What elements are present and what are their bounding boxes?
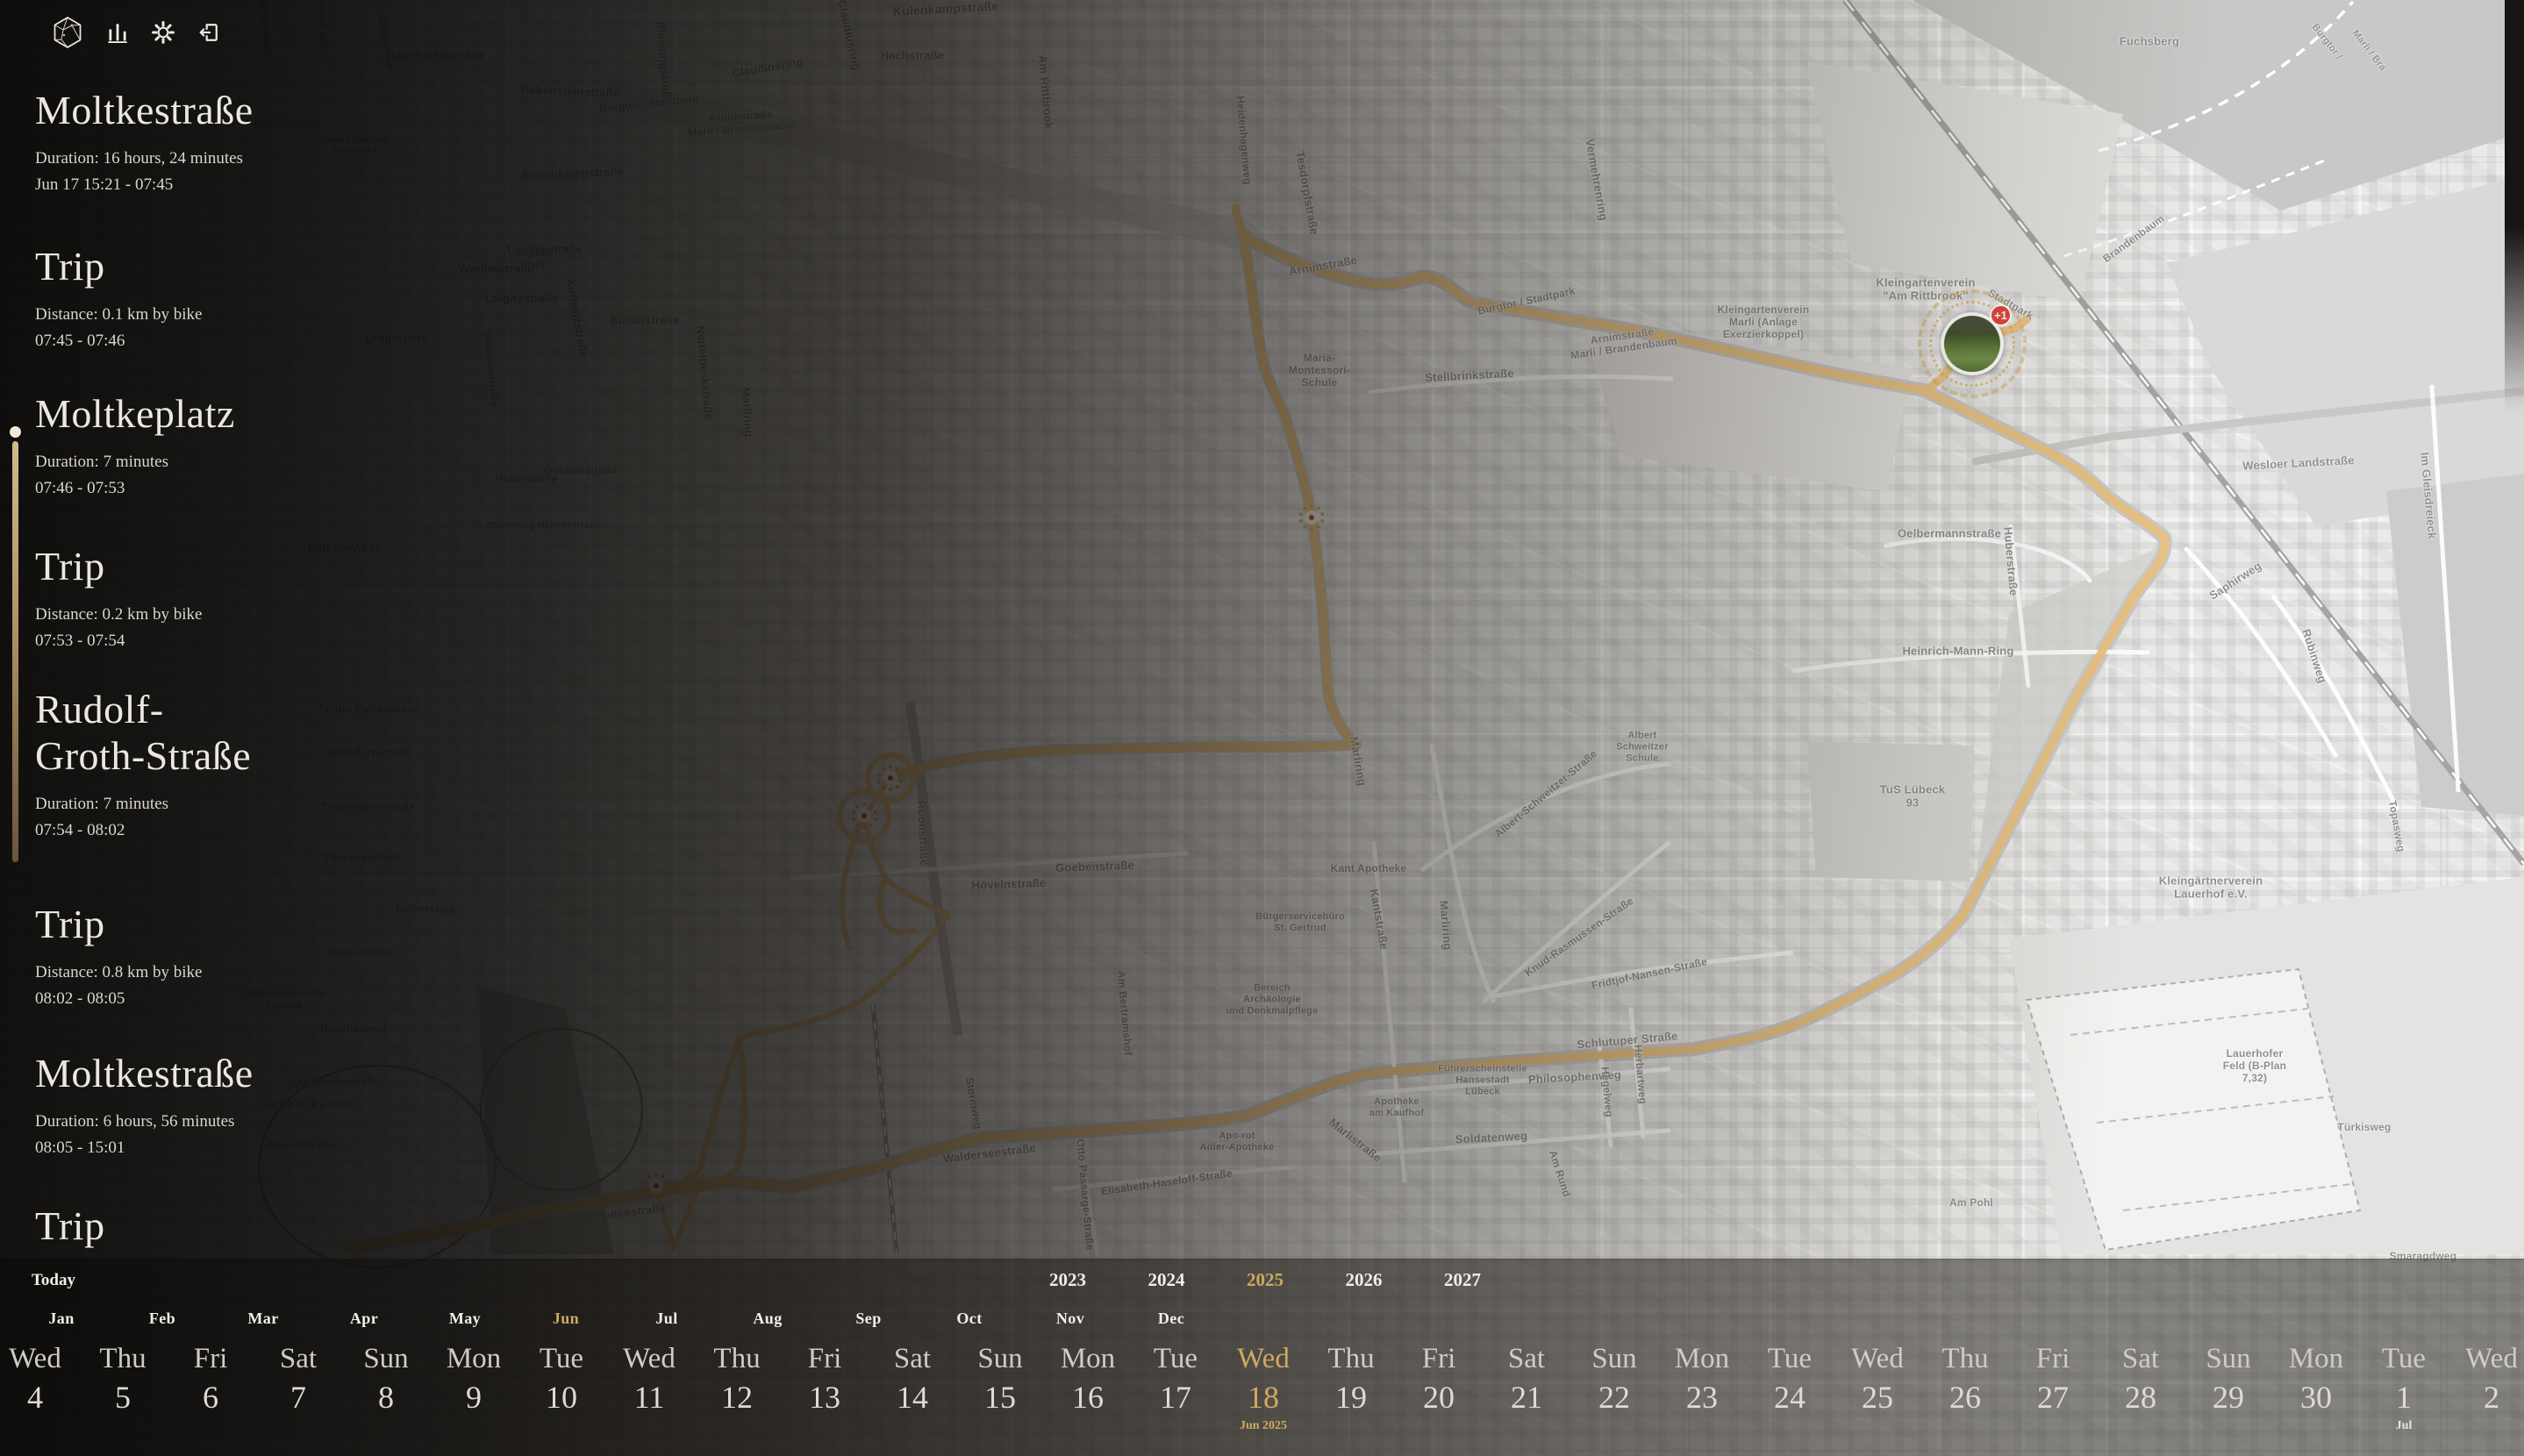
- map-label: Kleingartenverein Marli (Anlage Exerzier…: [1718, 303, 1810, 340]
- timeline-entry[interactable]: TripDistance: 0.2 km by bike07:53 - 07:5…: [35, 544, 379, 653]
- day-number: 1: [2360, 1377, 2448, 1418]
- timeline-entry-title: Rudolf- Groth-Straße: [35, 687, 379, 780]
- month-jul[interactable]: Jul: [617, 1310, 717, 1328]
- map-label: Rubinweg: [2299, 627, 2329, 684]
- day-fri-20[interactable]: Fri20: [1395, 1342, 1483, 1417]
- map-label: Topasweg: [2386, 800, 2407, 853]
- day-name: Fri: [167, 1342, 254, 1377]
- timeline-duration-bar: [12, 441, 18, 862]
- day-number: 11: [605, 1377, 693, 1418]
- timeline-entry-time: 07:46 - 07:53: [35, 476, 379, 501]
- map-label: Saphirweg: [2207, 559, 2264, 603]
- day-name: Mon: [2272, 1342, 2360, 1377]
- map-label: Schlutuper Straße: [1577, 1029, 1678, 1051]
- map-label: Vermehrenring: [1583, 138, 1610, 222]
- map-label: Soldatenweg: [1455, 1129, 1527, 1146]
- timeline-entry-title: Trip: [35, 902, 379, 948]
- year-2027[interactable]: 2027: [1413, 1269, 1512, 1291]
- day-name: Wed: [2448, 1342, 2524, 1377]
- day-name: Thu: [693, 1342, 781, 1377]
- day-sublabel: Jul: [2360, 1419, 2448, 1434]
- timeline-sidebar: MoltkestraßeDuration: 16 hours, 24 minut…: [0, 0, 412, 1456]
- map-label: TuS Lübeck 93: [1880, 783, 1946, 810]
- day-wed-4[interactable]: Wed4: [0, 1342, 79, 1417]
- day-name: Sat: [1483, 1342, 1570, 1377]
- timeline-entry-title: Moltkestraße: [35, 1051, 379, 1097]
- timeline-entry-time: 07:54 - 08:02: [35, 818, 379, 843]
- map-label: Elisabeth-Haseloff-Straße: [1100, 1167, 1233, 1197]
- day-sat-7[interactable]: Sat7: [254, 1342, 342, 1417]
- timeline-entry-time: Jun 17 15:21 - 07:45: [35, 173, 379, 197]
- year-2026[interactable]: 2026: [1315, 1269, 1413, 1291]
- day-name: Sun: [2184, 1342, 2272, 1377]
- map-label: Albert Schweitzer Schule: [1616, 731, 1668, 765]
- route-point-marker[interactable]: [643, 1173, 669, 1199]
- day-number: 18: [1219, 1377, 1307, 1418]
- map-label: Am Bertramshof: [1115, 970, 1135, 1056]
- timeline-current-dot: [10, 426, 21, 438]
- map-label: Schönkampstraße: [522, 164, 624, 182]
- day-number: 10: [518, 1377, 605, 1418]
- day-mon-9[interactable]: Mon9: [430, 1342, 518, 1417]
- map-label: Marliring: [1437, 900, 1455, 951]
- timeline-entry[interactable]: Trip: [35, 1203, 379, 1250]
- toolbar: [51, 16, 221, 49]
- map-label: Knud-Rasmussen-Straße: [1523, 895, 1636, 979]
- timeline-entry[interactable]: Rudolf- Groth-StraßeDuration: 7 minutes0…: [35, 687, 379, 843]
- day-wed-18[interactable]: Wed18Jun 2025: [1219, 1342, 1307, 1434]
- timeline-entry-title: Trip: [35, 544, 379, 590]
- day-fri-6[interactable]: Fri6: [167, 1342, 254, 1417]
- day-wed-25[interactable]: Wed25: [1834, 1342, 1921, 1417]
- month-apr[interactable]: Apr: [314, 1310, 414, 1328]
- day-number: 30: [2272, 1377, 2360, 1418]
- timeline-entry-detail: Duration: 7 minutes: [35, 792, 379, 817]
- day-name: Wed: [1219, 1342, 1307, 1377]
- day-number: 7: [254, 1377, 342, 1418]
- map-label: Fuchsberg: [2120, 34, 2179, 47]
- map-label: Wesloer Landstraße: [2242, 453, 2355, 473]
- day-name: Fri: [2009, 1342, 2097, 1377]
- day-sat-28[interactable]: Sat28: [2097, 1342, 2184, 1417]
- day-name: Mon: [1044, 1342, 1132, 1377]
- map-label: Heidenhagenweg: [1234, 96, 1255, 185]
- day-name: Tue: [1746, 1342, 1834, 1377]
- timeline-entry[interactable]: TripDistance: 0.8 km by bike08:02 - 08:0…: [35, 902, 379, 1011]
- day-tue-1[interactable]: Tue1Jul: [2360, 1342, 2448, 1434]
- day-number: 5: [79, 1377, 167, 1418]
- day-name: Wed: [0, 1342, 79, 1377]
- day-number: 27: [2009, 1377, 2097, 1418]
- route-point-marker[interactable]: [1298, 504, 1325, 531]
- day-thu-5[interactable]: Thu5: [79, 1342, 167, 1417]
- map-label: Stellbrinkstraße: [1425, 367, 1514, 385]
- map-label: Bülowstraße: [610, 313, 680, 326]
- map-label: Burgtor / Stadtpark: [1477, 284, 1577, 317]
- day-number: 29: [2184, 1377, 2272, 1418]
- map-label: Huberstraße: [2001, 526, 2020, 596]
- month-jan[interactable]: Jan: [11, 1310, 111, 1328]
- today-button[interactable]: Today: [32, 1271, 75, 1290]
- timeline-entry-title: Moltkestraße: [35, 88, 379, 134]
- map-label: Maria- Montessori- Schule: [1289, 352, 1350, 389]
- map-label: Goebenstraße: [1055, 859, 1134, 874]
- timeline-entry-title: Trip: [35, 244, 379, 290]
- day-number: 28: [2097, 1377, 2184, 1418]
- map-label: Marliring: [1348, 736, 1369, 788]
- map-label: Stormweg Hellebrstraße: [487, 521, 602, 532]
- day-name: Sat: [2097, 1342, 2184, 1377]
- map-label: Kant Apotheke: [1331, 862, 1407, 874]
- day-number: 24: [1746, 1377, 1834, 1418]
- day-name: Sun: [1570, 1342, 1658, 1377]
- day-name: Fri: [1395, 1342, 1483, 1377]
- day-tue-17[interactable]: Tue17: [1132, 1342, 1219, 1417]
- day-thu-12[interactable]: Thu12: [693, 1342, 781, 1417]
- day-wed-11[interactable]: Wed11: [605, 1342, 693, 1417]
- day-thu-19[interactable]: Thu19: [1307, 1342, 1395, 1417]
- day-name: Fri: [781, 1342, 869, 1377]
- month-nov[interactable]: Nov: [1020, 1310, 1120, 1328]
- map-label: Bürgerservicebüro St. Gertrud: [1255, 911, 1345, 934]
- day-name: Sat: [254, 1342, 342, 1377]
- map-label: Apo-rot Adler-Apotheke: [1200, 1131, 1275, 1153]
- map-label: Claudiusring: [731, 54, 804, 80]
- map-label: Marliring: [740, 387, 755, 437]
- map-label: Claudiusring: [835, 0, 863, 72]
- timeline-entry-detail: Duration: 6 hours, 56 minutes: [35, 1110, 379, 1134]
- map-label: Arnimstraße: [1288, 253, 1358, 279]
- calendar-bar[interactable]: Today 20232024202520262027 JanFebMarAprM…: [0, 1259, 2524, 1456]
- map-label: Wakenitz: [519, 1053, 554, 1138]
- day-name: Thu: [1921, 1342, 2009, 1377]
- timeline-entry-time: 07:53 - 07:54: [35, 629, 379, 653]
- day-number: 21: [1483, 1377, 1570, 1418]
- day-name: Tue: [2360, 1342, 2448, 1377]
- day-fri-13[interactable]: Fri13: [781, 1342, 869, 1417]
- map-label: Marli / Bra: [2349, 28, 2388, 74]
- map-label: Rabensteinstraße: [521, 82, 620, 99]
- app-logo[interactable]: [51, 16, 84, 49]
- month-sep[interactable]: Sep: [819, 1310, 919, 1328]
- map-label: Hachstraße: [881, 48, 945, 61]
- timeline-entry-current[interactable]: MoltkeplatzDuration: 7 minutes07:46 - 07…: [35, 391, 379, 501]
- year-2024[interactable]: 2024: [1118, 1269, 1216, 1291]
- timeline-entry-detail: Distance: 0.8 km by bike: [35, 960, 379, 985]
- day-number: 15: [956, 1377, 1044, 1418]
- map-label: Marlistraße: [1326, 1116, 1384, 1165]
- map-label: Otto-Passarge-Straße: [1074, 1138, 1096, 1251]
- map-label: Roonstraße: [914, 801, 931, 867]
- day-sat-21[interactable]: Sat21: [1483, 1342, 1570, 1417]
- day-wed-2[interactable]: Wed2: [2448, 1342, 2524, 1417]
- photo-thumbnail: [1944, 316, 2000, 372]
- timeline-entry-detail: Duration: 16 hours, 24 minutes: [35, 146, 379, 171]
- map-label: Plessingstraße: [654, 21, 675, 105]
- map-label: Arnimstraße Marli / Brandenbaum: [687, 107, 796, 139]
- timeline-entry-detail: Distance: 0.1 km by bike: [35, 303, 379, 327]
- day-number: 6: [167, 1377, 254, 1418]
- map-label: Schule Marli: [517, 248, 549, 271]
- map-label: Herbartweg: [1632, 1044, 1649, 1104]
- timeline-entry[interactable]: MoltkestraßeDuration: 16 hours, 24 minut…: [35, 88, 379, 197]
- map-label: Lauerhofer Feld (B-Plan 7,32): [2223, 1047, 2286, 1084]
- map-label: Brandenbaum: [2100, 212, 2166, 265]
- map-label: Albert-Schweitzer-Straße: [1492, 747, 1599, 840]
- month-mar[interactable]: Mar: [213, 1310, 313, 1328]
- month-jun[interactable]: Jun: [516, 1310, 616, 1328]
- day-mon-16[interactable]: Mon16: [1044, 1342, 1132, 1417]
- month-feb[interactable]: Feb: [112, 1310, 212, 1328]
- map-label: Fridtjof-Nansen-Straße: [1591, 955, 1708, 992]
- day-name: Sun: [956, 1342, 1044, 1377]
- map-label: Arnimstraße Marli / Brandenbaum: [1568, 322, 1677, 361]
- day-number: 4: [0, 1377, 79, 1418]
- day-name: Tue: [1132, 1342, 1219, 1377]
- route-point-marker[interactable]: [877, 765, 904, 791]
- day-thu-26[interactable]: Thu26: [1921, 1342, 2009, 1417]
- map-label: Oelbermannstraße: [1898, 526, 2001, 539]
- map-label: Bereich Archäologie und Denkmalpflege: [1226, 983, 1319, 1017]
- day-number: 9: [430, 1377, 518, 1418]
- logout-icon[interactable]: [197, 20, 221, 45]
- map-label: Nettelbeckstraße: [694, 325, 716, 421]
- app-window: KulenkampstraßeRabensteinstraßeRabenstei…: [0, 0, 2524, 1456]
- day-mon-30[interactable]: Mon30: [2272, 1342, 2360, 1417]
- photo-count-badge[interactable]: +1: [1990, 304, 2012, 326]
- timeline-entry-title: Trip: [35, 1203, 379, 1250]
- day-tue-24[interactable]: Tue24: [1746, 1342, 1834, 1417]
- day-name: Sat: [869, 1342, 956, 1377]
- map-label: Am Pohl: [1949, 1196, 1993, 1209]
- map-label: Burgtor /: [2309, 22, 2344, 62]
- map-label: Stormweg: [963, 1076, 984, 1130]
- day-name: Wed: [605, 1342, 693, 1377]
- day-sublabel: Jun 2025: [1219, 1419, 1307, 1434]
- map-label: Hövelnstraße: [971, 876, 1046, 892]
- map-label: Kulenkampstraße: [892, 0, 998, 18]
- day-fri-27[interactable]: Fri27: [2009, 1342, 2097, 1417]
- day-name: Tue: [518, 1342, 605, 1377]
- day-number: 22: [1570, 1377, 1658, 1418]
- month-dec[interactable]: Dec: [1121, 1310, 1221, 1328]
- day-number: 14: [869, 1377, 956, 1418]
- day-name: Thu: [1307, 1342, 1395, 1377]
- day-number: 12: [693, 1377, 781, 1418]
- timeline-entry[interactable]: MoltkestraßeDuration: 6 hours, 56 minute…: [35, 1051, 379, 1160]
- map-label: Heinrich-Mann-Ring: [1902, 644, 2013, 657]
- month-oct[interactable]: Oct: [919, 1310, 1019, 1328]
- map-label: Chasseestraße: [482, 330, 501, 408]
- year-2023[interactable]: 2023: [1019, 1269, 1117, 1291]
- day-number: 13: [781, 1377, 869, 1418]
- map-label: Führerscheinstelle Hansestadt Lübeck: [1438, 1064, 1527, 1098]
- day-number: 23: [1658, 1377, 1746, 1418]
- map-edge-shadow: [2505, 0, 2524, 412]
- month-may[interactable]: May: [415, 1310, 515, 1328]
- day-number: 2: [2448, 1377, 2524, 1418]
- timeline-entry-detail: Distance: 0.2 km by bike: [35, 603, 379, 627]
- day-name: Thu: [79, 1342, 167, 1377]
- map-label: Tesdorpfstraße: [1293, 150, 1321, 236]
- map-label: Moltkestraße: [593, 1201, 667, 1223]
- photo-cluster-marker[interactable]: +1: [1941, 312, 2004, 375]
- timeline-entry-time: 07:45 - 07:46: [35, 329, 379, 353]
- map-label: Kottwitzstraße: [563, 277, 590, 360]
- map-label: Apotheke am Kaufhof: [1369, 1096, 1425, 1119]
- timeline-entry-time: 08:05 - 15:01: [35, 1136, 379, 1160]
- day-number: 17: [1132, 1377, 1219, 1418]
- month-aug[interactable]: Aug: [718, 1310, 818, 1328]
- map-label: Kleingärtnerverein Lauerhof e.V.: [2159, 874, 2263, 902]
- timeline-entry-time: 08:02 - 08:05: [35, 987, 379, 1011]
- settings-icon[interactable]: [151, 20, 175, 45]
- timeline-entry-detail: Duration: 7 minutes: [35, 450, 379, 475]
- timeline-entry-title: Moltkeplatz: [35, 391, 379, 438]
- day-sun-15[interactable]: Sun15: [956, 1342, 1044, 1417]
- day-number: 19: [1307, 1377, 1395, 1418]
- day-tue-10[interactable]: Tue10: [518, 1342, 605, 1417]
- day-sun-8[interactable]: Sun8: [342, 1342, 430, 1417]
- stats-icon[interactable]: [105, 20, 130, 45]
- day-number: 16: [1044, 1377, 1132, 1418]
- day-name: Sun: [342, 1342, 430, 1377]
- map-label: Am Rund: [1547, 1149, 1573, 1198]
- day-sun-29[interactable]: Sun29: [2184, 1342, 2272, 1417]
- map-label: Walderseestraße: [942, 1141, 1037, 1166]
- map-label: Goebenstraße: [544, 464, 617, 476]
- day-name: Mon: [430, 1342, 518, 1377]
- day-sat-14[interactable]: Sat14: [869, 1342, 956, 1417]
- map-label: Loignystraße: [485, 291, 559, 304]
- map-label: Kantstraße: [1367, 888, 1391, 951]
- day-name: Mon: [1658, 1342, 1746, 1377]
- route-point-marker[interactable]: [851, 803, 877, 829]
- map-label: Am Rittbrook: [1036, 54, 1056, 130]
- map-label: Im Gleisdreieck: [2418, 452, 2439, 539]
- day-number: 26: [1921, 1377, 2009, 1418]
- day-number: 25: [1834, 1377, 1921, 1418]
- timeline-entry[interactable]: TripDistance: 0.1 km by bike07:45 - 07:4…: [35, 244, 379, 353]
- day-number: 8: [342, 1377, 430, 1418]
- day-mon-23[interactable]: Mon23: [1658, 1342, 1746, 1417]
- year-2025[interactable]: 2025: [1216, 1269, 1314, 1291]
- day-name: Wed: [1834, 1342, 1921, 1377]
- day-sun-22[interactable]: Sun22: [1570, 1342, 1658, 1417]
- day-number: 20: [1395, 1377, 1483, 1418]
- map-label: Türkisweg: [2337, 1121, 2391, 1133]
